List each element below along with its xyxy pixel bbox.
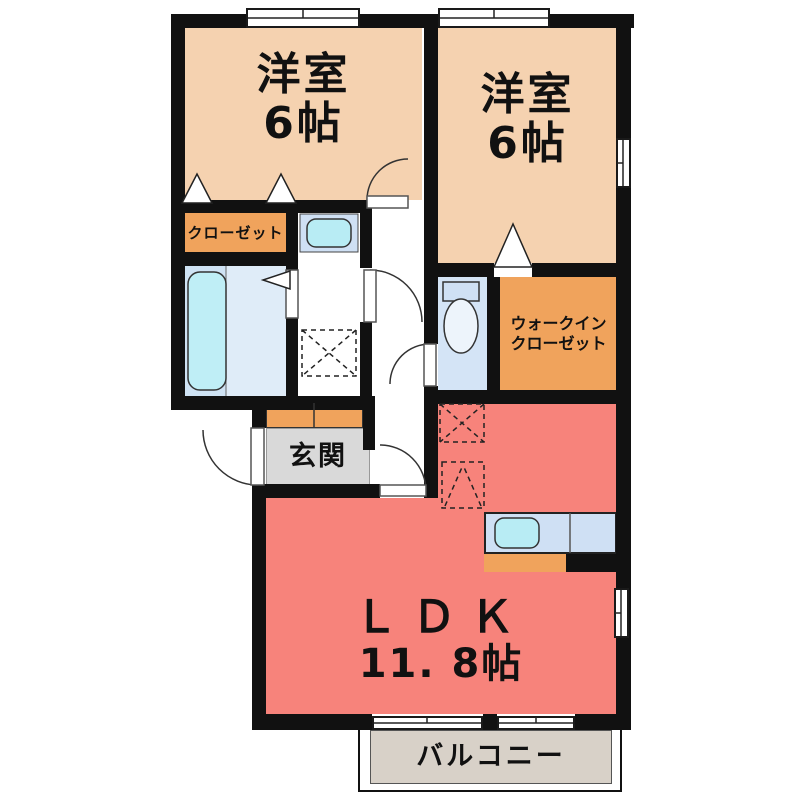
toilet-icon — [443, 282, 479, 353]
entrance-text: 玄関 — [289, 442, 347, 472]
bedroom2-label: 洋室 6帖 — [438, 58, 617, 180]
washbasin-icon — [300, 214, 358, 252]
closet-text: クローゼット — [187, 225, 283, 242]
balcony-text: バルコニー — [416, 742, 565, 772]
wic-line1: ウォークイン — [510, 314, 606, 334]
bedroom1-name: 洋室 — [257, 50, 351, 99]
entrance-label: 玄関 — [266, 430, 370, 484]
bathtub-icon — [188, 272, 226, 390]
bedroom2-size: 6帖 — [487, 119, 568, 168]
refrigerator-space-icon — [440, 404, 484, 442]
walk-in-closet-label: ウォークイン クローゼット — [500, 303, 617, 365]
floorplan: 洋室 6帖 洋室 6帖 クローゼット ウォークイン クローゼット 玄関 ＬＤＫ … — [0, 0, 800, 800]
ldk-name: ＬＤＫ — [354, 593, 528, 642]
bedroom1-label: 洋室 6帖 — [185, 38, 422, 160]
ldk-size: 11. 8帖 — [359, 642, 524, 687]
bedroom1-size: 6帖 — [263, 99, 344, 148]
wic-line2: クローゼット — [510, 334, 606, 354]
balcony-label: バルコニー — [370, 732, 612, 782]
kitchen-sink-icon — [495, 518, 539, 548]
closet-label: クローゼット — [185, 214, 286, 252]
bedroom2-name: 洋室 — [481, 70, 575, 119]
cupboard-space-icon — [442, 462, 484, 508]
ldk-label: ＬＤＫ 11. 8帖 — [266, 582, 616, 698]
washing-machine-space-icon — [302, 330, 356, 376]
